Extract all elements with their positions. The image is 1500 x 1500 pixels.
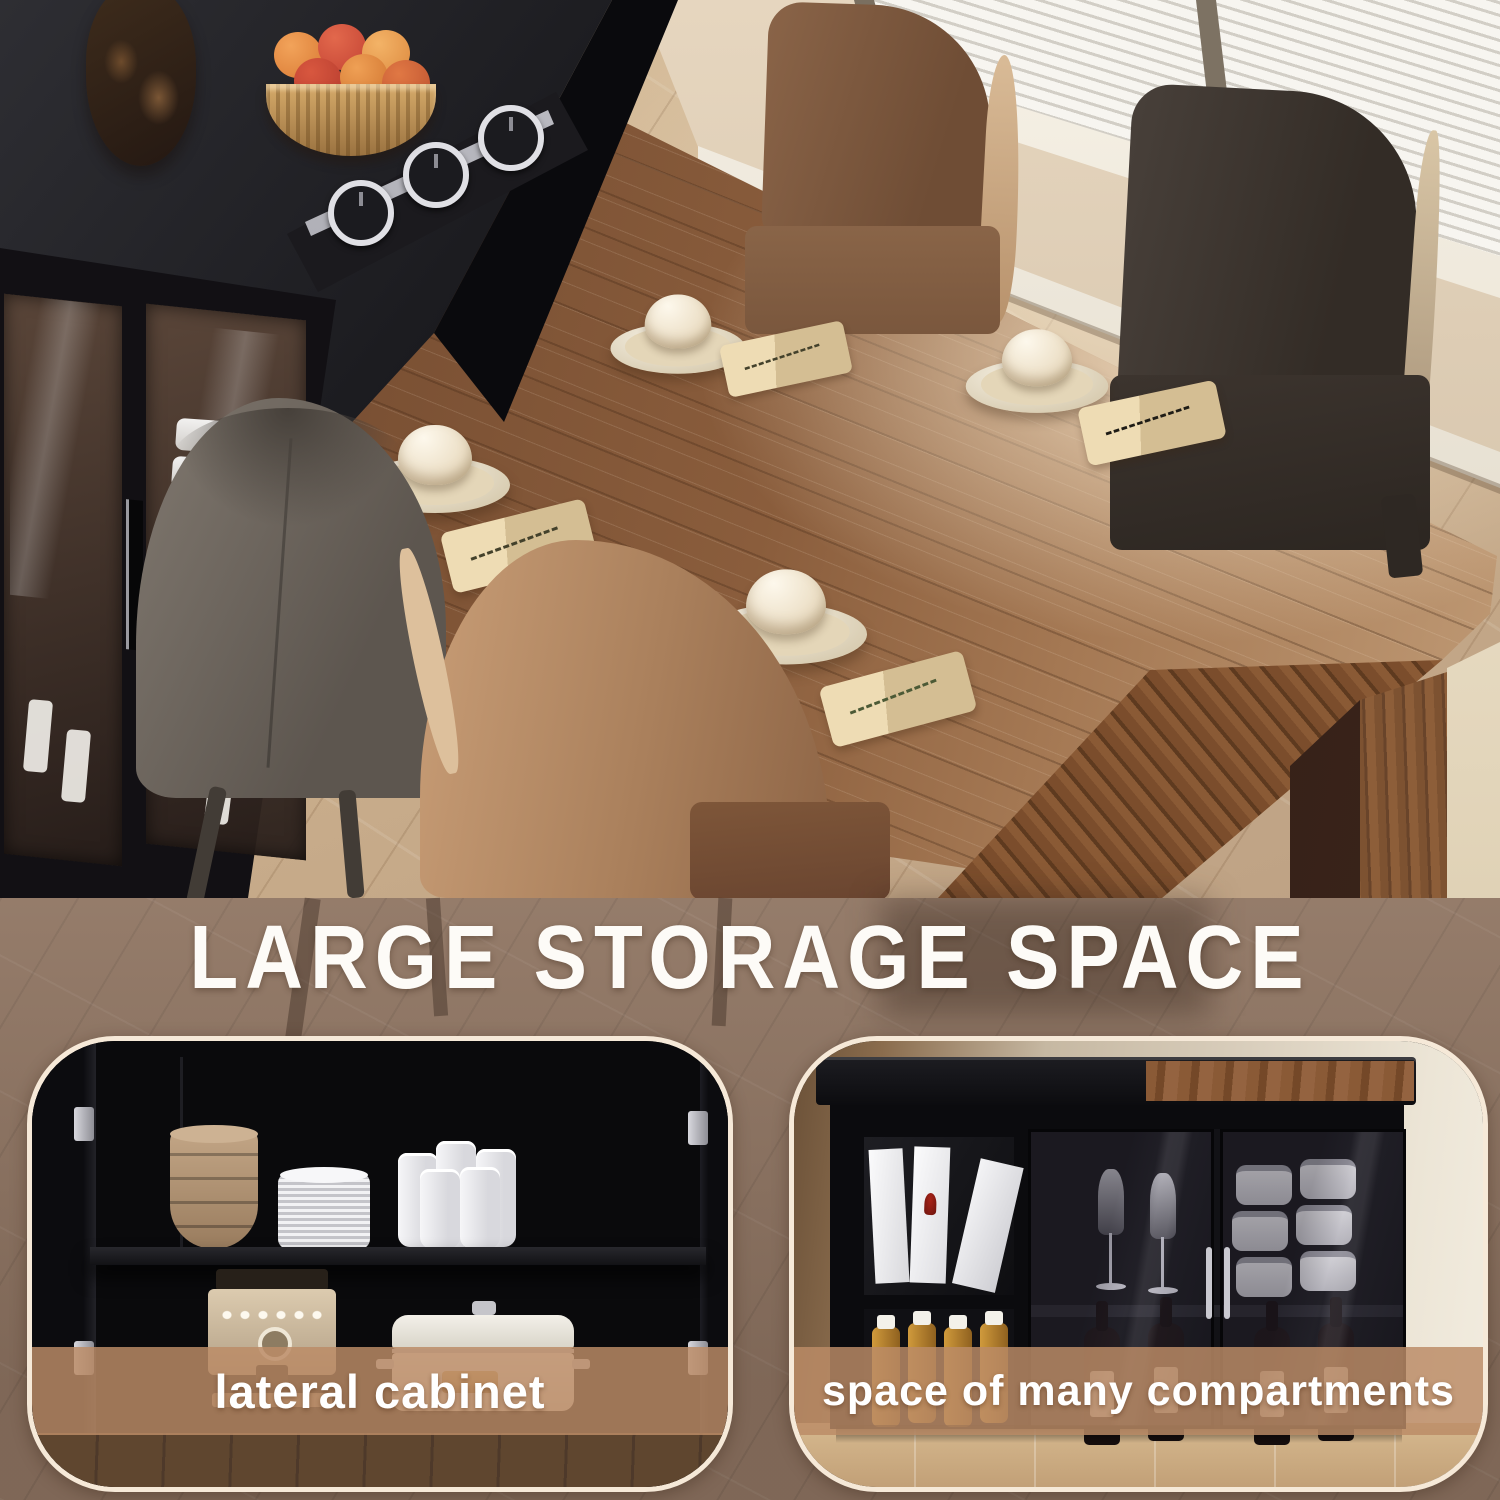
machine-buttons [218,1307,326,1325]
dining-chair-brown [745,0,1045,345]
file-box [910,1146,951,1283]
bowl [1002,329,1072,386]
caption-text: space of many compartments [822,1367,1455,1416]
plate-stack [278,1173,370,1249]
storage-banner: LARGE STORAGE SPACE [0,898,1500,1500]
door-handle [1224,1247,1230,1319]
cup [460,1167,500,1249]
bottle-cap [877,1315,895,1329]
caption-text: lateral cabinet [214,1364,545,1419]
door-hinge [74,1107,94,1141]
control-knob [478,105,544,171]
chair-seat-cushion [690,802,890,898]
cooker-knob [472,1301,496,1315]
cup [420,1169,460,1249]
dining-room-photo [0,0,1500,898]
door-handle [1206,1247,1212,1319]
card-compartments: space of many compartments [789,1036,1488,1492]
fruit-bowl [266,24,436,156]
bottle-cap [949,1315,967,1329]
chair-leg [186,786,228,898]
bottle-cap [913,1311,931,1325]
herb-sprig [744,344,819,371]
caption-bar: space of many compartments [794,1347,1483,1435]
banner-title: LARGE STORAGE SPACE [0,904,1500,1012]
control-knob [328,180,394,246]
door-hinge [688,1111,708,1145]
bowl [645,295,712,349]
dining-chair-tan [420,540,890,898]
file-box [952,1158,1024,1293]
place-setting [966,329,1109,415]
card-lateral-cabinet: lateral cabinet [27,1036,733,1492]
wood-floor-strip [32,1433,728,1487]
sideboard-wood-accent [1146,1061,1414,1101]
caption-bar: lateral cabinet [32,1347,728,1435]
bowl-stack [170,1129,258,1249]
wine-glass-graphic [924,1193,937,1215]
chair-back [761,1,994,249]
cabinet-shelf [90,1247,706,1265]
woven-basket [266,84,436,156]
chair-seat [745,226,1000,334]
machine-hopper [216,1269,328,1291]
product-listing-image: LARGE STORAGE SPACE [0,0,1500,1500]
chair-wing-shadow [168,408,408,528]
cooker-lid [392,1315,574,1349]
open-cubby-top [864,1137,1014,1295]
glass-reflection [10,295,110,606]
file-box [869,1148,910,1284]
herb-sprig [1105,406,1189,436]
plate-top [280,1167,368,1183]
bowl-rim [170,1125,258,1143]
chair-leg [338,789,364,898]
dining-chair-dark [1105,90,1465,580]
bottle-cap [985,1311,1003,1325]
